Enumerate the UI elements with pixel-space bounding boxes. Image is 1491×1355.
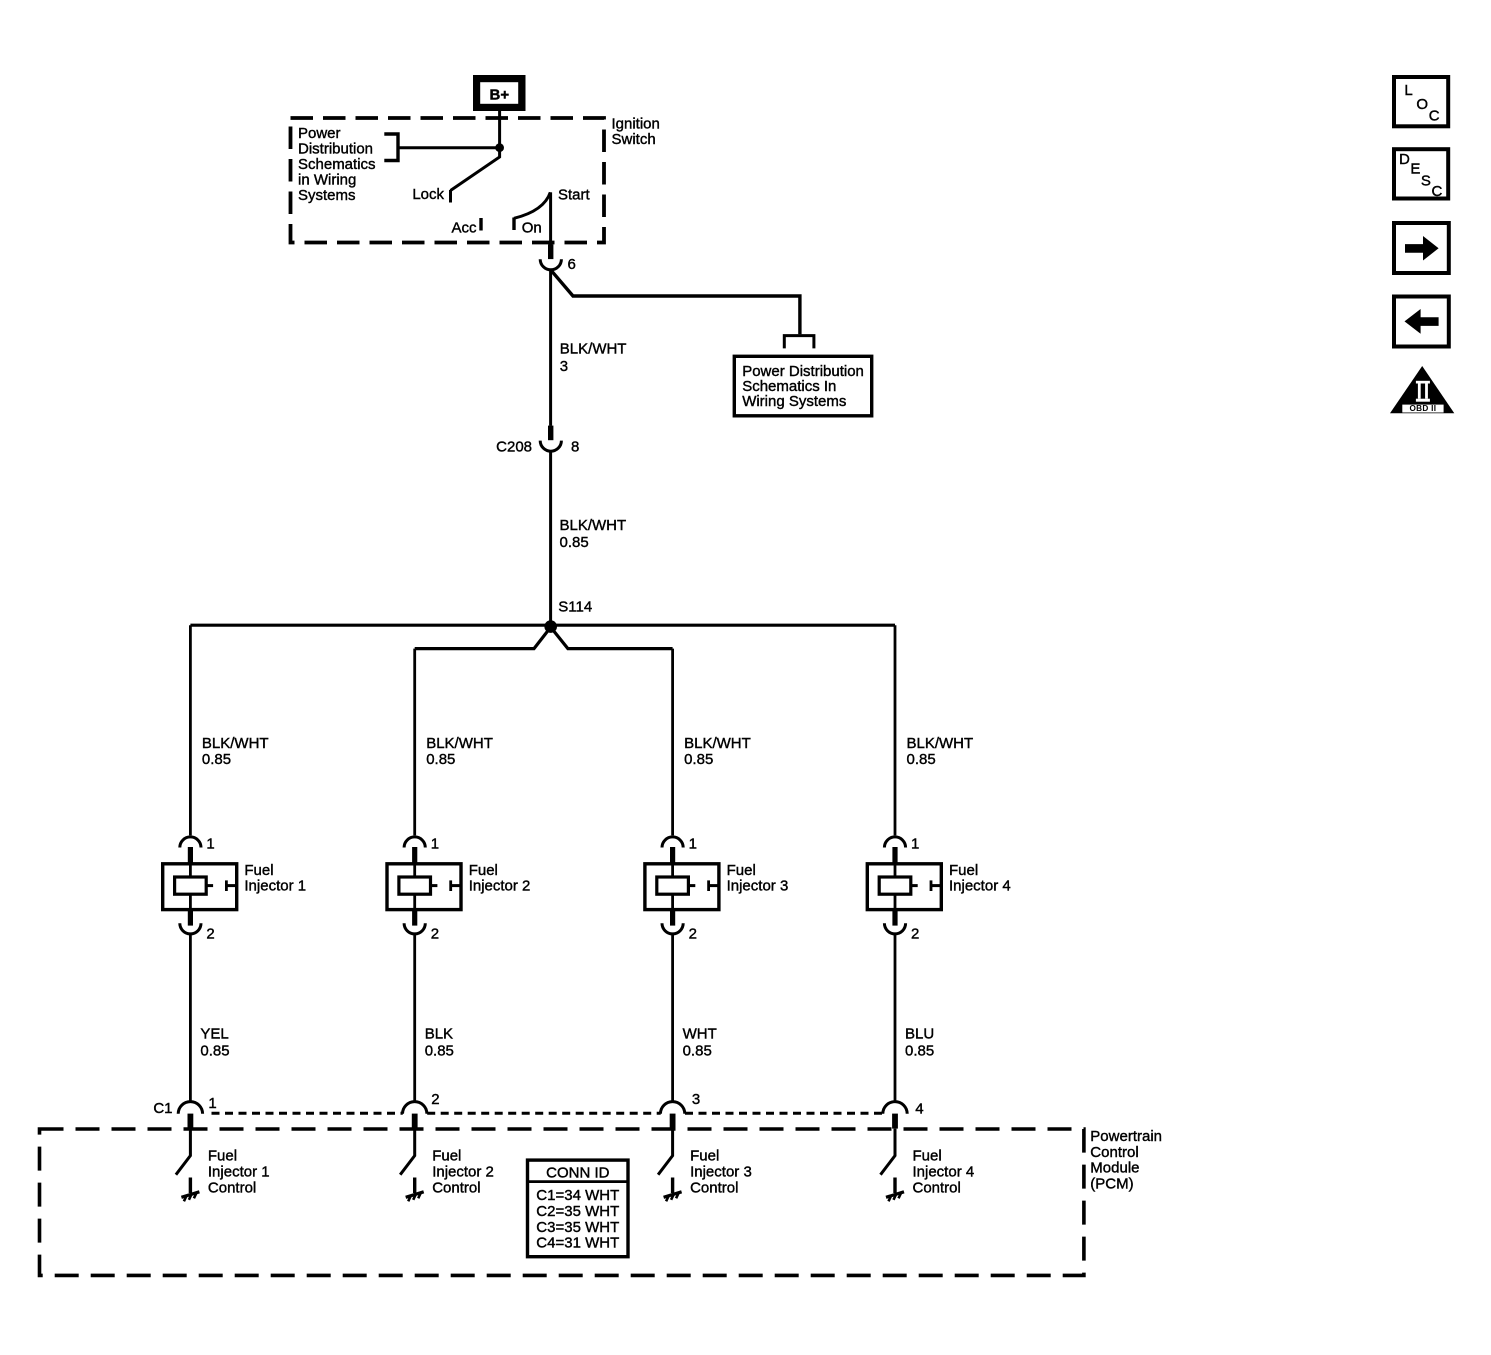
svg-text:O: O [1416,96,1428,113]
svg-text:BLK/WHT: BLK/WHT [907,735,974,752]
svg-text:Powertrain: Powertrain [1090,1128,1162,1145]
svg-text:BLU: BLU [905,1026,934,1043]
svg-text:1: 1 [208,1095,216,1112]
svg-text:0.85: 0.85 [202,751,231,768]
svg-text:0.85: 0.85 [560,534,589,551]
svg-text:C3=35 WHT: C3=35 WHT [536,1219,619,1236]
svg-text:0.85: 0.85 [425,1043,454,1060]
svg-text:BLK/WHT: BLK/WHT [202,735,269,752]
svg-text:E: E [1410,161,1420,178]
svg-text:BLK: BLK [425,1026,453,1043]
svg-text:Injector 1: Injector 1 [244,877,306,894]
svg-text:Injector 4: Injector 4 [949,877,1011,894]
svg-text:Ignition: Ignition [612,116,660,133]
svg-text:1: 1 [911,836,919,853]
svg-text:C: C [1432,183,1443,200]
svg-text:Fuel: Fuel [913,1148,942,1165]
svg-text:C4=31 WHT: C4=31 WHT [536,1235,619,1252]
svg-text:Module: Module [1090,1160,1139,1177]
svg-text:Systems: Systems [298,187,356,204]
svg-text:0.85: 0.85 [907,751,936,768]
svg-text:1: 1 [689,836,697,853]
svg-text:0.85: 0.85 [683,1043,712,1060]
svg-text:C1=34 WHT: C1=34 WHT [536,1187,619,1204]
svg-text:2: 2 [911,926,919,943]
svg-text:1: 1 [206,836,214,853]
svg-text:2: 2 [431,926,439,943]
svg-text:Lock: Lock [412,186,444,203]
svg-text:4: 4 [915,1101,923,1118]
svg-text:Injector 2: Injector 2 [469,877,531,894]
svg-text:0.85: 0.85 [905,1043,934,1060]
svg-text:Control: Control [208,1179,256,1196]
svg-text:B+: B+ [490,87,510,104]
svg-text:On: On [522,220,542,237]
svg-text:Injector 3: Injector 3 [727,877,789,894]
svg-text:Fuel: Fuel [208,1148,237,1165]
svg-text:Injector 1: Injector 1 [208,1164,270,1181]
svg-text:3: 3 [692,1091,700,1108]
svg-text:0.85: 0.85 [200,1043,229,1060]
svg-text:Injector 2: Injector 2 [432,1164,494,1181]
svg-text:Fuel: Fuel [949,862,978,879]
svg-text:BLK/WHT: BLK/WHT [426,735,493,752]
svg-text:Control: Control [1090,1144,1138,1161]
svg-text:2: 2 [689,926,697,943]
svg-text:Fuel: Fuel [469,862,498,879]
svg-text:Control: Control [690,1179,738,1196]
svg-text:Injector 4: Injector 4 [913,1164,975,1181]
svg-text:BLK/WHT: BLK/WHT [684,735,751,752]
svg-text:OBD II: OBD II [1409,404,1436,413]
svg-text:Control: Control [432,1179,480,1196]
svg-text:C2=35 WHT: C2=35 WHT [536,1203,619,1220]
svg-text:Injector 3: Injector 3 [690,1164,752,1181]
svg-text:S114: S114 [558,599,592,616]
svg-text:Fuel: Fuel [727,862,756,879]
svg-text:D: D [1399,151,1410,168]
svg-text:0.85: 0.85 [426,751,455,768]
svg-text:S: S [1421,173,1431,190]
svg-text:WHT: WHT [683,1026,717,1043]
svg-text:1: 1 [431,836,439,853]
svg-text:0.85: 0.85 [684,751,713,768]
svg-text:6: 6 [568,256,576,273]
svg-text:Wiring Systems: Wiring Systems [742,393,846,410]
svg-text:CONN ID: CONN ID [546,1164,610,1181]
svg-text:Acc: Acc [452,220,478,237]
svg-text:C1: C1 [153,1100,172,1117]
svg-text:Fuel: Fuel [244,862,273,879]
svg-text:L: L [1404,82,1412,99]
svg-text:BLK/WHT: BLK/WHT [560,341,627,358]
svg-text:(PCM): (PCM) [1090,1176,1133,1193]
svg-text:2: 2 [431,1091,439,1108]
svg-text:Control: Control [913,1179,961,1196]
svg-text:Fuel: Fuel [432,1148,461,1165]
svg-text:C208: C208 [496,438,532,455]
svg-text:C: C [1429,107,1440,124]
svg-text:YEL: YEL [200,1026,228,1043]
svg-text:3: 3 [560,358,568,375]
svg-text:2: 2 [206,926,214,943]
svg-text:Switch: Switch [612,131,656,148]
svg-text:Start: Start [558,186,591,203]
svg-text:8: 8 [571,438,579,455]
svg-text:BLK/WHT: BLK/WHT [560,517,627,534]
svg-text:Fuel: Fuel [690,1148,719,1165]
